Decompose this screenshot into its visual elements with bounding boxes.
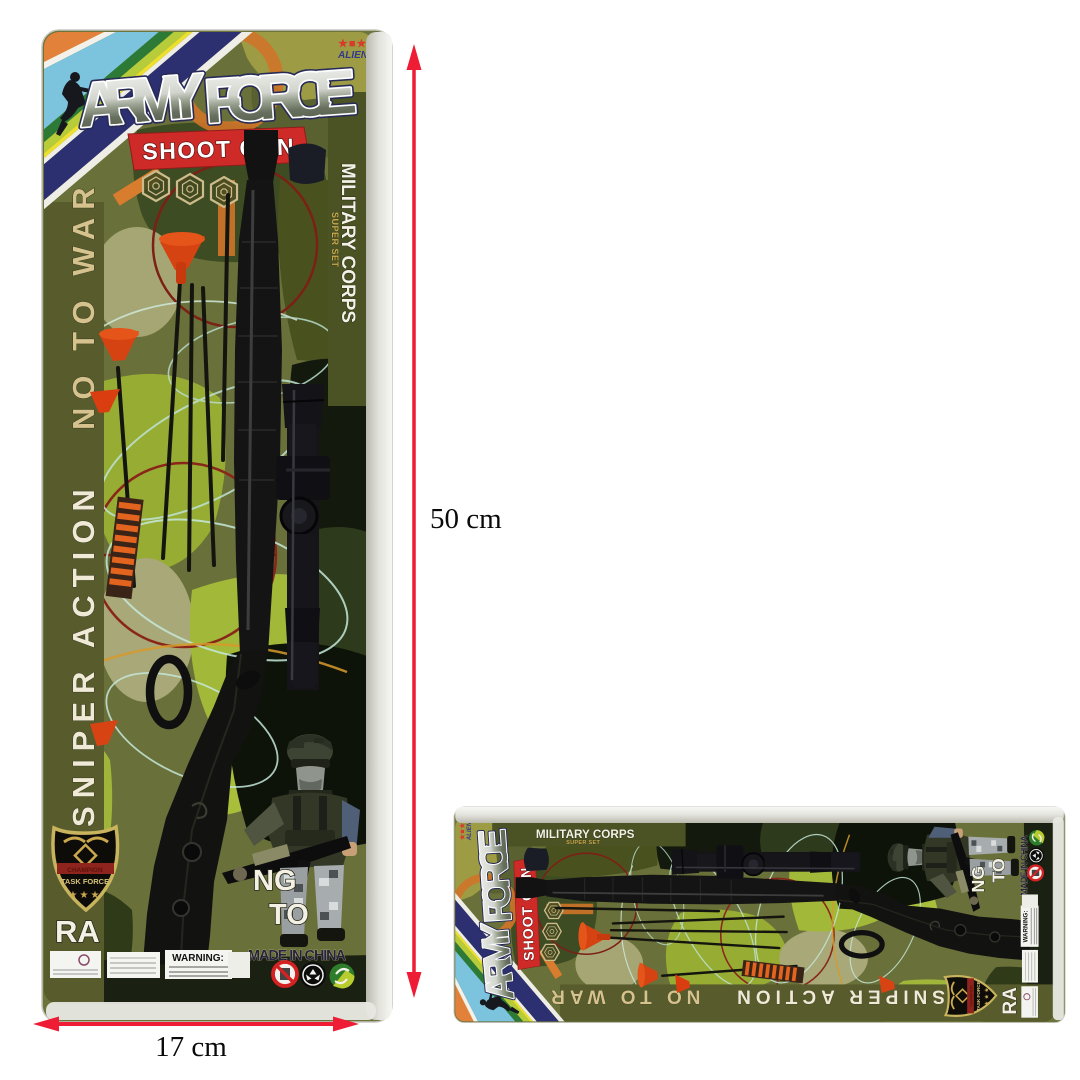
- svg-text:50 cm: 50 cm: [430, 503, 502, 535]
- svg-text:17 cm: 17 cm: [155, 1031, 227, 1063]
